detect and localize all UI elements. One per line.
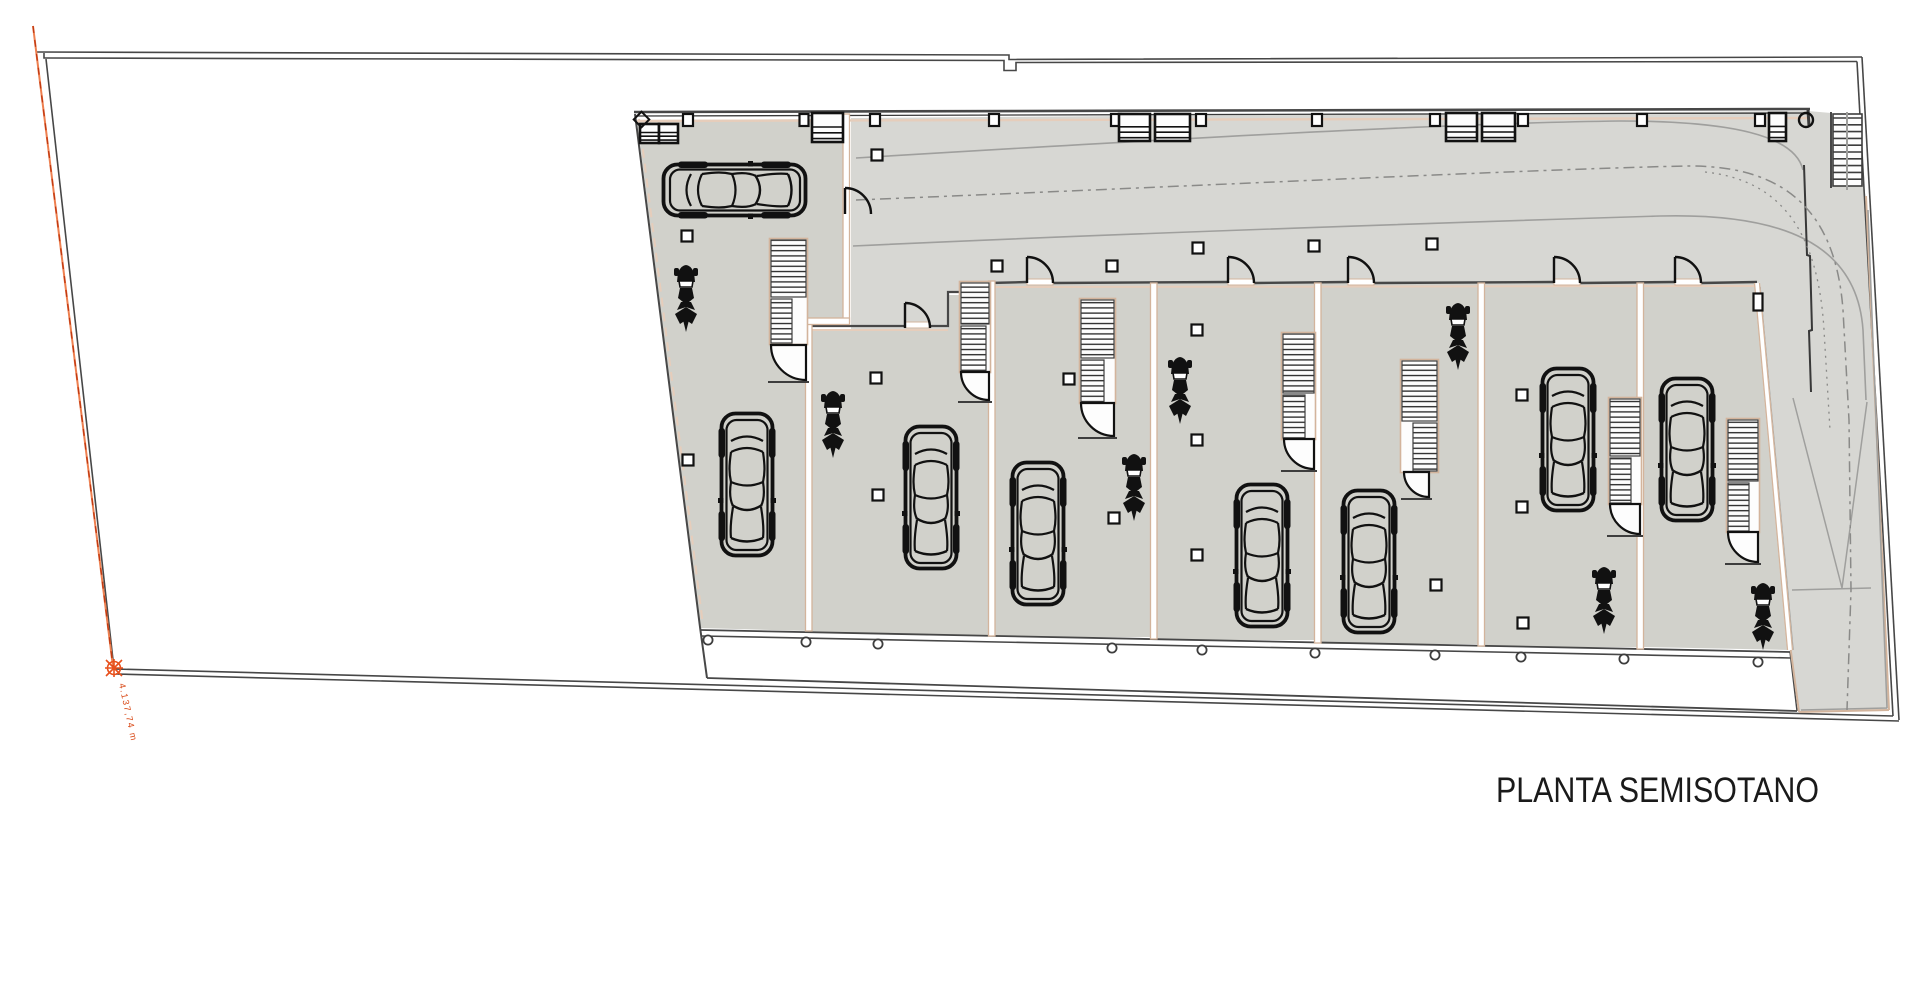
svg-text:PLANTA SEMISOTANO: PLANTA SEMISOTANO: [1496, 771, 1819, 810]
